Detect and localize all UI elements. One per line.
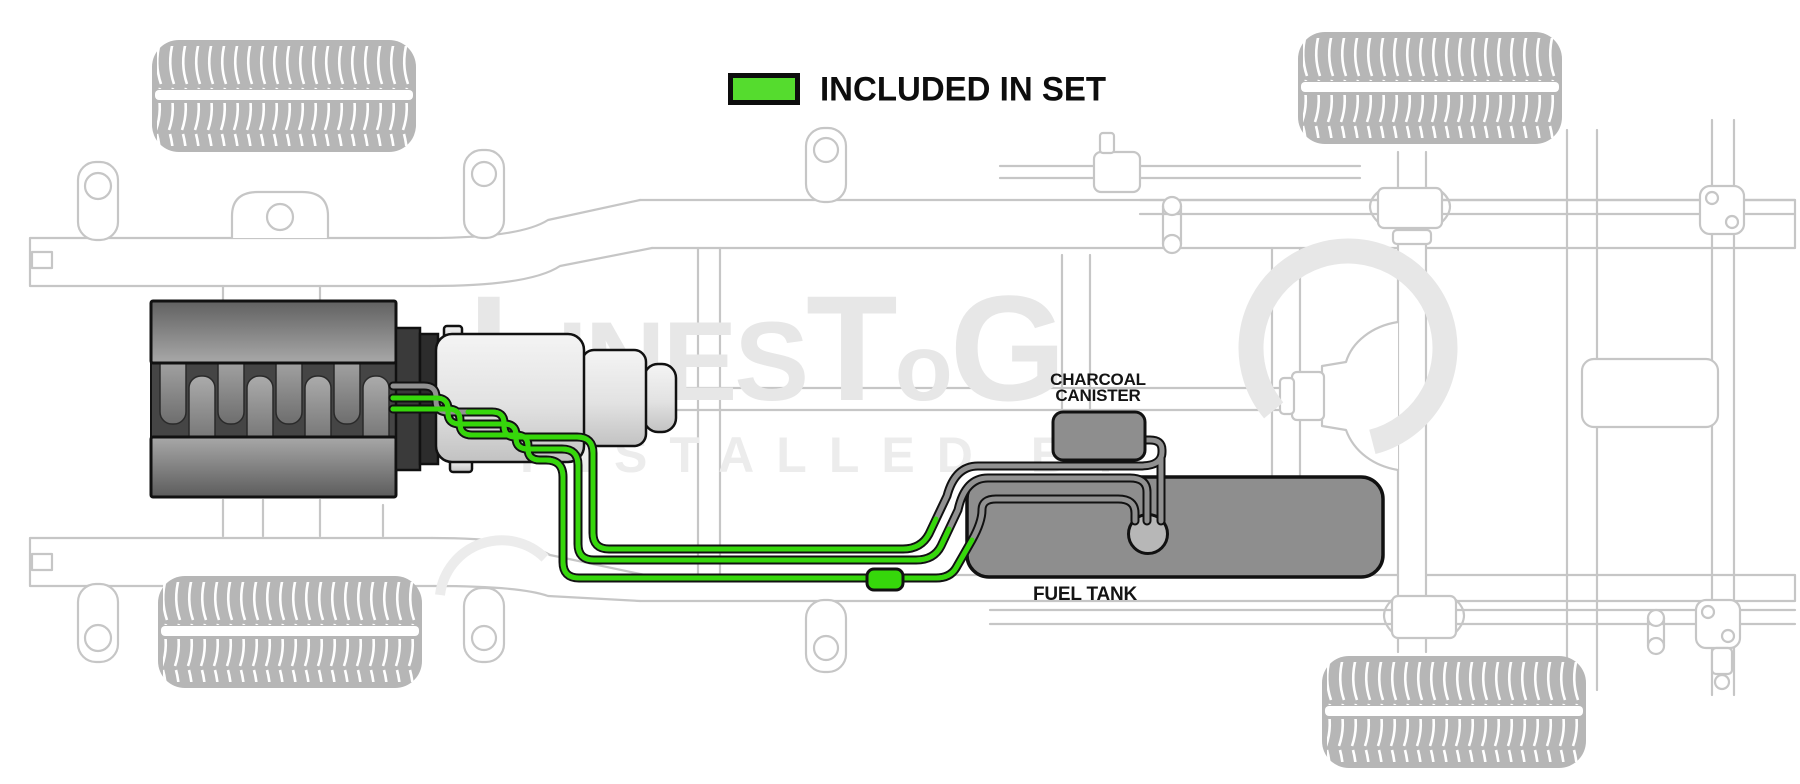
- legend-label: INCLUDED IN SET: [820, 69, 1106, 109]
- tire-front-right: [1298, 32, 1562, 144]
- transmission-mid: [582, 350, 646, 446]
- front-bracket-left-top: [78, 162, 118, 240]
- rear-frame-rail-top: [640, 200, 1795, 248]
- crossmember-hump-top: [232, 192, 328, 238]
- fuel-line-diagram: LINESToG INSTALLED BY: [0, 0, 1800, 784]
- fuel-tank-label: FUEL TANK: [1000, 584, 1170, 606]
- tire-rear-right: [1322, 656, 1586, 768]
- charcoal-canister: [1053, 412, 1145, 460]
- u-joint: [1292, 372, 1324, 420]
- transmission-body: [436, 334, 584, 462]
- tire-rear-left: [158, 576, 422, 688]
- valve-cover-top: [151, 301, 396, 363]
- charcoal-canister-label: CHARCOAL CANISTER: [1008, 372, 1188, 404]
- line-connector-clip: [867, 569, 903, 590]
- legend-color-swatch: [728, 73, 800, 105]
- front-bracket-left-bottom: [78, 584, 118, 662]
- diagram-canvas: LINESToG INSTALLED BY: [0, 0, 1800, 784]
- tire-front-left: [152, 40, 416, 152]
- front-frame-rail-top: [30, 238, 430, 286]
- transmission-tail: [644, 364, 676, 432]
- legend: INCLUDED IN SET: [728, 70, 1106, 108]
- charcoal-canister-label-line2: CANISTER: [1008, 388, 1188, 404]
- valve-cover-bottom: [151, 437, 396, 497]
- fuel-tank: [967, 477, 1383, 577]
- watermark-swoosh-circle: [1211, 211, 1484, 484]
- spare-tire-crossmember: [1582, 359, 1718, 427]
